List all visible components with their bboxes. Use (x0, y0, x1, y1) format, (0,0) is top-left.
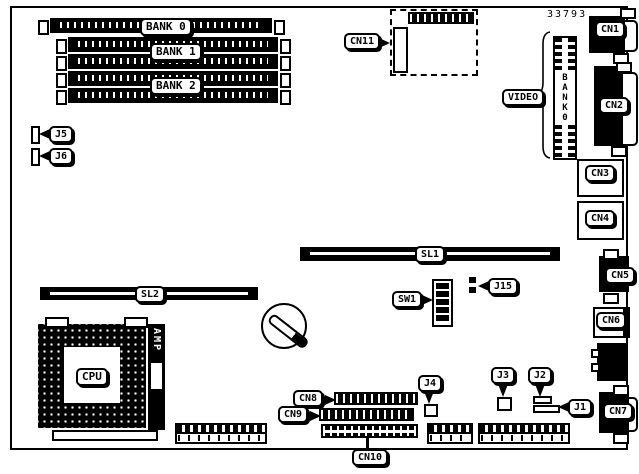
cn2-mount-tab (616, 62, 632, 73)
bottom-connector-right (478, 423, 570, 444)
label-video: VIDEO (502, 89, 544, 106)
slot-pins (555, 38, 575, 71)
label-cn5: CN5 (605, 267, 635, 284)
connector-pins (430, 435, 470, 441)
motherboard-diagram: BANK 0 BANK 1 BANK 2 J5 J6 CN11 33793 B … (0, 0, 639, 474)
connector-pins (481, 435, 567, 441)
label-sl2: SL2 (135, 286, 165, 303)
slot-clip (38, 20, 49, 35)
label-j3: J3 (491, 367, 515, 384)
label-cpu: CPU (76, 368, 108, 386)
cn9-header (319, 408, 414, 421)
cpu-retention-bar (52, 430, 158, 441)
label-cn3: CN3 (585, 165, 615, 182)
video-bank-slot: B A N K 0 (553, 36, 577, 160)
label-cn8: CN8 (293, 390, 323, 407)
slot-clip (56, 39, 67, 54)
slot-clip (280, 73, 291, 88)
j4-pointer (424, 391, 434, 404)
slot-clip (280, 39, 291, 54)
cn1-mount-tab (620, 8, 636, 19)
label-cn11: CN11 (344, 33, 380, 50)
vbank-letter: A (562, 83, 567, 93)
vbank-letter: N (562, 93, 567, 103)
jumper-j1 (533, 405, 560, 413)
audio-jack-connector (597, 343, 628, 381)
sw1-dip-switch (432, 279, 453, 327)
jumper-j3 (497, 397, 512, 411)
label-j15: J15 (488, 278, 518, 295)
cn8-pointer (325, 395, 336, 405)
sw1-pointer (422, 295, 433, 305)
label-j5: J5 (49, 126, 73, 143)
cn9-pointer (310, 411, 321, 421)
bottom-connector-middle (427, 423, 473, 444)
cn11-pointer (379, 38, 390, 48)
amp-window (151, 363, 162, 389)
vbank-letter: B (562, 73, 567, 83)
label-cn1: CN1 (595, 21, 625, 38)
jumper-j4 (424, 404, 438, 417)
cn5-mount-tab (603, 249, 619, 260)
amp-module: AMP (148, 324, 165, 430)
label-cn6: CN6 (596, 312, 626, 329)
connector-pins (429, 425, 471, 434)
connector-pins (480, 425, 568, 434)
j3-pointer (498, 384, 508, 397)
label-sw1: SW1 (392, 291, 422, 308)
cpu-mount-tab (124, 317, 148, 328)
slot-clip (280, 90, 291, 105)
cn10-header (321, 424, 418, 438)
slot-pins (555, 125, 575, 158)
label-bank2: BANK 2 (150, 77, 202, 95)
vbank-letter: K (562, 103, 567, 113)
connector-pins (178, 435, 264, 441)
label-j2: J2 (528, 367, 552, 384)
dip-positions (436, 283, 449, 323)
jumper-j15 (469, 277, 476, 283)
label-amp: AMP (151, 328, 162, 352)
label-cn7: CN7 (603, 403, 633, 420)
slot-clip (56, 56, 67, 71)
label-bank1: BANK 1 (150, 43, 202, 61)
label-cn9: CN9 (278, 406, 308, 423)
vbank-label: B A N K 0 (555, 72, 575, 124)
cn7-mount-tab (613, 433, 629, 444)
cn2-mount-tab (611, 146, 627, 157)
slot-clip (56, 73, 67, 88)
label-j4: J4 (418, 375, 442, 392)
connector-pins (177, 425, 265, 434)
cpu-mount-tab (45, 317, 69, 328)
vbank-letter: 0 (562, 113, 567, 123)
part-number: 33793 (547, 9, 587, 20)
jumper-j2 (533, 396, 552, 404)
cn7-mount-tab (613, 385, 629, 396)
j2-pointer (535, 384, 545, 397)
label-cn4: CN4 (585, 210, 615, 227)
jumper-j15 (469, 287, 476, 293)
slot-clip (274, 20, 285, 35)
bottom-connector-left (175, 423, 267, 444)
cn11-pin-header (408, 12, 474, 24)
cn5-mount-tab (603, 293, 619, 304)
cn8-header (334, 392, 418, 405)
label-j6: J6 (49, 148, 73, 165)
label-sl1: SL1 (415, 246, 445, 263)
slot-clip (56, 90, 67, 105)
audio-jack-nub (591, 349, 600, 358)
slot-clip (280, 56, 291, 71)
label-bank0: BANK 0 (140, 18, 192, 36)
label-cn10: CN10 (352, 449, 388, 466)
label-cn2: CN2 (599, 97, 629, 114)
audio-jack-nub (591, 363, 600, 372)
label-j1: J1 (568, 399, 592, 416)
cn11-socket (393, 27, 408, 73)
